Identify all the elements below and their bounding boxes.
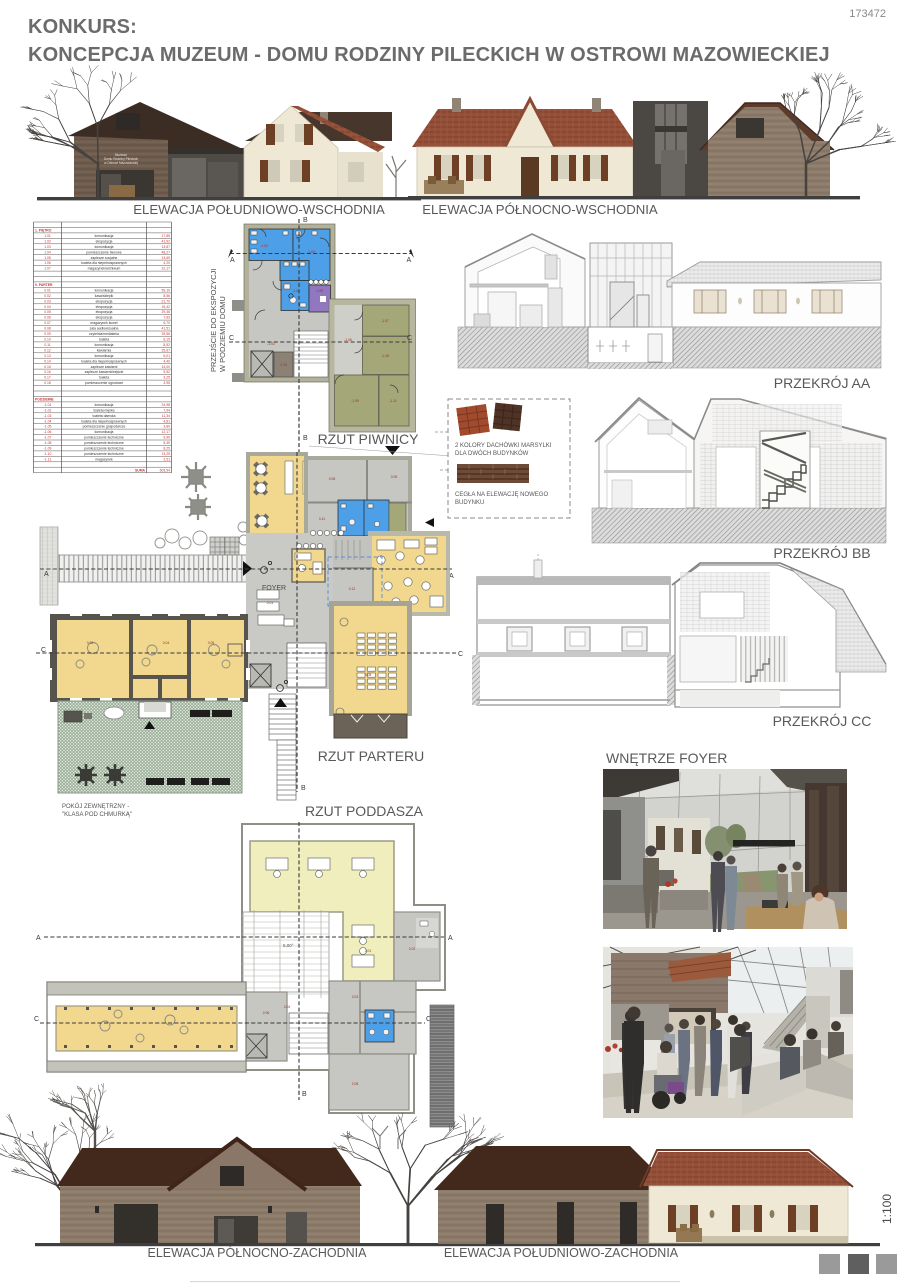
svg-text:7,63: 7,63 <box>163 316 170 320</box>
svg-text:komunikacja: komunikacja <box>95 234 114 238</box>
svg-text:w Ostrowi Mazowieckiej: w Ostrowi Mazowieckiej <box>104 161 138 165</box>
svg-text:12,17: 12,17 <box>162 430 171 434</box>
svg-text:A: A <box>448 935 453 942</box>
svg-text:3,80: 3,80 <box>163 425 170 429</box>
svg-text:0.18: 0.18 <box>44 381 51 385</box>
svg-text:0.12: 0.12 <box>349 587 356 591</box>
svg-text:0.04: 0.04 <box>163 641 170 645</box>
svg-text:2.05: 2.05 <box>352 1082 359 1086</box>
svg-text:0.01: 0.01 <box>44 288 51 292</box>
svg-text:komunikacja: komunikacja <box>95 245 114 249</box>
svg-text:-1.11: -1.11 <box>389 399 397 403</box>
svg-text:-1.05: -1.05 <box>315 289 323 293</box>
svg-text:-1.10: -1.10 <box>279 363 287 367</box>
svg-text:pomieszczenie techniczne: pomieszczenie techniczne <box>84 436 124 440</box>
svg-text:0.14: 0.14 <box>44 359 51 363</box>
svg-text:8,56: 8,56 <box>163 294 170 298</box>
svg-text:pomieszczenie techniczne: pomieszczenie techniczne <box>84 447 124 451</box>
svg-text:pomieszczenie techniczne: pomieszczenie techniczne <box>84 452 124 456</box>
svg-text:-1.01: -1.01 <box>44 403 52 407</box>
svg-text:A: A <box>407 257 412 264</box>
svg-text:W PODZIEMIU DOMU: W PODZIEMIU DOMU <box>218 296 227 372</box>
svg-text:0.06: 0.06 <box>329 477 336 481</box>
svg-text:ELEWACJA POŁUDNIOWO-ZACHODNIA: ELEWACJA POŁUDNIOWO-ZACHODNIA <box>444 1246 679 1260</box>
svg-text:pomieszczenie gospodarcze: pomieszczenie gospodarcze <box>83 425 126 429</box>
svg-text:8,25: 8,25 <box>163 447 170 451</box>
svg-text:1.01: 1.01 <box>44 234 51 238</box>
svg-text:POKÓJ ZEWNĘTRZNY -: POKÓJ ZEWNĘTRZNY - <box>62 803 129 810</box>
svg-text:pomieszczenie techniczne: pomieszczenie techniczne <box>84 441 124 445</box>
svg-text:C: C <box>458 651 463 658</box>
svg-text:BUDYNKU: BUDYNKU <box>455 500 484 506</box>
svg-text:1.07: 1.07 <box>44 267 51 271</box>
svg-text:0.04: 0.04 <box>44 305 51 309</box>
svg-text:4,20: 4,20 <box>163 261 170 265</box>
svg-text:KONCEPCJA MUZEUM - DOMU RODZIN: KONCEPCJA MUZEUM - DOMU RODZINY PILECKIC… <box>28 44 830 66</box>
svg-text:41,51: 41,51 <box>162 327 171 331</box>
svg-text:2.03: 2.03 <box>352 995 359 999</box>
svg-text:komunikacja: komunikacja <box>95 343 114 347</box>
svg-text:A: A <box>44 571 49 578</box>
svg-text:1. PIĘTRO: 1. PIĘTRO <box>35 229 52 233</box>
svg-text:5,00°: 5,00° <box>283 943 294 948</box>
svg-text:48,27: 48,27 <box>162 250 171 254</box>
svg-text:4,40: 4,40 <box>163 359 170 363</box>
svg-text:8,39: 8,39 <box>163 441 170 445</box>
svg-text:59,19: 59,19 <box>162 288 171 292</box>
svg-text:toaleta: toaleta <box>99 376 109 380</box>
svg-text:0.12: 0.12 <box>44 348 51 352</box>
svg-text:PRZEKRÓJ CC: PRZEKRÓJ CC <box>773 713 872 729</box>
svg-text:0.07: 0.07 <box>44 321 51 325</box>
svg-text:RZUT PIWNICY: RZUT PIWNICY <box>318 431 420 447</box>
svg-text:13,25: 13,25 <box>162 452 171 456</box>
svg-text:RZUT PODDASZA: RZUT PODDASZA <box>305 803 424 819</box>
svg-text:ELEWACJA PÓŁNOCNO-ZACHODNIA: ELEWACJA PÓŁNOCNO-ZACHODNIA <box>147 1245 367 1260</box>
svg-text:CEGŁA NA ELEWACJĘ NOWEGO: CEGŁA NA ELEWACJĘ NOWEGO <box>455 492 548 498</box>
svg-text:zaplecze socjalne: zaplecze socjalne <box>91 256 118 260</box>
svg-text:0.02: 0.02 <box>44 294 51 298</box>
svg-text:-1.06: -1.06 <box>344 338 352 342</box>
svg-text:0.17: 0.17 <box>44 376 51 380</box>
svg-text:-1.05: -1.05 <box>44 425 52 429</box>
svg-text:A: A <box>230 257 235 264</box>
svg-text:2.01: 2.01 <box>365 949 372 953</box>
svg-text:WNĘTRZE FOYER: WNĘTRZE FOYER <box>606 750 727 766</box>
svg-text:komunikacja: komunikacja <box>95 430 114 434</box>
svg-text:toaleta dla niepełnosprawnych: toaleta dla niepełnosprawnych <box>81 261 127 265</box>
svg-text:173472: 173472 <box>849 8 886 20</box>
svg-text:kawiarnia: kawiarnia <box>97 348 111 352</box>
svg-text:ekspozycja: ekspozycja <box>96 239 113 243</box>
svg-text:ekspozycja: ekspozycja <box>96 305 113 309</box>
svg-text:toaleta dla niepełnosprawnych: toaleta dla niepełnosprawnych <box>81 419 127 423</box>
svg-text:komunikacja: komunikacja <box>95 354 114 358</box>
svg-text:B: B <box>302 1091 307 1098</box>
svg-text:C: C <box>34 1016 39 1023</box>
svg-text:2.06: 2.06 <box>263 1011 270 1015</box>
svg-text:sala audiowizualna: sala audiowizualna <box>90 327 119 331</box>
svg-text:0.03: 0.03 <box>44 299 51 303</box>
svg-text:9,52: 9,52 <box>163 370 170 374</box>
svg-text:C: C <box>407 335 412 342</box>
svg-text:0.13: 0.13 <box>44 354 51 358</box>
svg-text:-1.08: -1.08 <box>381 354 389 358</box>
svg-text:pomieszczenie biurowe: pomieszczenie biurowe <box>86 250 121 254</box>
svg-text:zaplecze kawiarni/wejście: zaplecze kawiarni/wejście <box>85 370 124 374</box>
svg-text:0.08: 0.08 <box>44 327 51 331</box>
svg-text:0.01: 0.01 <box>267 601 274 605</box>
svg-text:13,00: 13,00 <box>162 365 171 369</box>
svg-text:-1.06: -1.06 <box>44 430 52 434</box>
svg-text:2.02: 2.02 <box>409 947 416 951</box>
svg-text:B: B <box>301 785 306 792</box>
svg-text:ekspozycja: ekspozycja <box>96 310 113 314</box>
svg-text:29,46: 29,46 <box>162 310 171 314</box>
svg-text:0.16: 0.16 <box>44 370 51 374</box>
svg-text:toaleta: toaleta <box>99 338 109 342</box>
svg-text:0.05: 0.05 <box>44 310 51 314</box>
svg-text:0.08: 0.08 <box>365 673 372 677</box>
svg-text:24,98: 24,98 <box>162 403 171 407</box>
svg-text:pomieszczenie ogrodowe: pomieszczenie ogrodowe <box>85 381 123 385</box>
svg-text:PRZEJŚCIE DO EKSPOZYCJI: PRZEJŚCIE DO EKSPOZYCJI <box>209 269 218 372</box>
svg-text:0. PARTER: 0. PARTER <box>35 283 53 287</box>
svg-text:25,67: 25,67 <box>162 348 171 352</box>
svg-text:-1.07: -1.07 <box>381 319 389 323</box>
svg-text:1.04: 1.04 <box>44 250 51 254</box>
svg-text:8,52: 8,52 <box>163 343 170 347</box>
svg-text:7,94: 7,94 <box>163 408 170 412</box>
svg-text:magazynek/archiwum: magazynek/archiwum <box>88 267 121 271</box>
svg-text:ELEWACJA PÓŁNOCNO-WSCHODNIA: ELEWACJA PÓŁNOCNO-WSCHODNIA <box>422 202 658 217</box>
svg-text:0.05: 0.05 <box>391 475 398 479</box>
svg-text:RZUT PARTERU: RZUT PARTERU <box>318 748 425 764</box>
svg-text:komunikacja: komunikacja <box>95 288 114 292</box>
svg-text:-1.11: -1.11 <box>44 457 52 461</box>
svg-text:2 KOLORY DACHÓWKI MARSYLKI: 2 KOLORY DACHÓWKI MARSYLKI <box>455 442 552 449</box>
svg-text:1:100: 1:100 <box>880 1194 894 1224</box>
svg-text:0.11: 0.11 <box>319 517 325 521</box>
svg-text:4,81: 4,81 <box>163 419 170 423</box>
svg-text:1.02: 1.02 <box>44 239 51 243</box>
svg-text:PRZEKRÓJ BB: PRZEKRÓJ BB <box>773 545 870 561</box>
svg-text:-1.09: -1.09 <box>351 399 359 403</box>
svg-text:0.05: 0.05 <box>208 641 215 645</box>
svg-text:3,25: 3,25 <box>163 376 170 380</box>
svg-text:22,17: 22,17 <box>162 267 171 271</box>
svg-text:magazynek kuwet: magazynek kuwet <box>90 321 117 325</box>
svg-text:B: B <box>303 217 308 224</box>
svg-text:-1.04: -1.04 <box>44 419 52 423</box>
svg-text:0.09: 0.09 <box>44 332 51 336</box>
svg-text:21,70: 21,70 <box>162 299 171 303</box>
svg-text:-1.03: -1.03 <box>44 414 52 418</box>
svg-text:13,87: 13,87 <box>162 245 171 249</box>
svg-text:C: C <box>229 335 234 342</box>
svg-text:6,01: 6,01 <box>163 354 170 358</box>
svg-text:KONKURS:: KONKURS: <box>28 16 137 38</box>
svg-text:komunikacja: komunikacja <box>95 403 114 407</box>
svg-text:A: A <box>36 935 41 942</box>
svg-text:3,95: 3,95 <box>163 381 170 385</box>
svg-text:15,42: 15,42 <box>162 305 171 309</box>
svg-text:603,94: 603,94 <box>160 468 170 472</box>
svg-text:ekspozycja: ekspozycja <box>96 299 113 303</box>
svg-text:zaplecze kawiarni: zaplecze kawiarni <box>91 365 118 369</box>
svg-text:-1.10: -1.10 <box>44 452 52 456</box>
svg-text:11,34: 11,34 <box>162 414 170 418</box>
svg-text:"KLASA POD CHMURKĄ": "KLASA POD CHMURKĄ" <box>62 812 132 818</box>
svg-text:41,92: 41,92 <box>162 239 171 243</box>
svg-text:PODZIEMIE: PODZIEMIE <box>35 397 54 401</box>
svg-text:PRZEKRÓJ AA: PRZEKRÓJ AA <box>774 375 871 391</box>
svg-text:-1.02: -1.02 <box>260 244 268 248</box>
svg-text:17,85: 17,85 <box>162 234 171 238</box>
svg-text:9,99: 9,99 <box>163 436 170 440</box>
svg-text:0.06: 0.06 <box>44 316 51 320</box>
svg-text:czytelnia/mediateka: czytelnia/mediateka <box>89 332 119 336</box>
svg-text:29,56: 29,56 <box>162 332 171 336</box>
svg-text:toaleta damska: toaleta damska <box>93 414 116 418</box>
svg-text:1.06: 1.06 <box>44 261 51 265</box>
svg-text:0.11: 0.11 <box>44 343 50 347</box>
svg-text:1.05: 1.05 <box>44 256 51 260</box>
svg-text:2,51: 2,51 <box>163 457 170 461</box>
svg-text:-1.02: -1.02 <box>44 408 52 412</box>
svg-text:magazynek: magazynek <box>95 457 113 461</box>
svg-text:-1.08: -1.08 <box>44 441 52 445</box>
svg-text:6,15: 6,15 <box>163 338 170 342</box>
svg-text:-1.09: -1.09 <box>44 447 52 451</box>
svg-text:0.15: 0.15 <box>44 365 51 369</box>
svg-text:SUMA: SUMA <box>135 468 146 472</box>
svg-text:-1.07: -1.07 <box>44 436 52 440</box>
svg-text:0.10: 0.10 <box>44 338 51 342</box>
svg-text:toaleta męska: toaleta męska <box>93 408 114 412</box>
svg-text:0.03: 0.03 <box>87 641 94 645</box>
svg-text:-1.01: -1.01 <box>267 342 275 346</box>
svg-text:B: B <box>303 435 308 442</box>
svg-text:ELEWACJA POŁUDNIOWO-WSCHODNIA: ELEWACJA POŁUDNIOWO-WSCHODNIA <box>133 202 385 217</box>
svg-text:kasa/sklepik: kasa/sklepik <box>95 294 114 298</box>
svg-text:toaleta dla niepełnosprawnych: toaleta dla niepełnosprawnych <box>81 359 127 363</box>
svg-text:ekspozycja: ekspozycja <box>96 316 113 320</box>
svg-text:2.04: 2.04 <box>284 1005 291 1009</box>
svg-text:DLA DWÓCH BUDYNKÓW: DLA DWÓCH BUDYNKÓW <box>455 450 529 457</box>
svg-text:1.03: 1.03 <box>44 245 51 249</box>
svg-text:6,70: 6,70 <box>163 321 170 325</box>
svg-text:13,69: 13,69 <box>162 256 171 260</box>
